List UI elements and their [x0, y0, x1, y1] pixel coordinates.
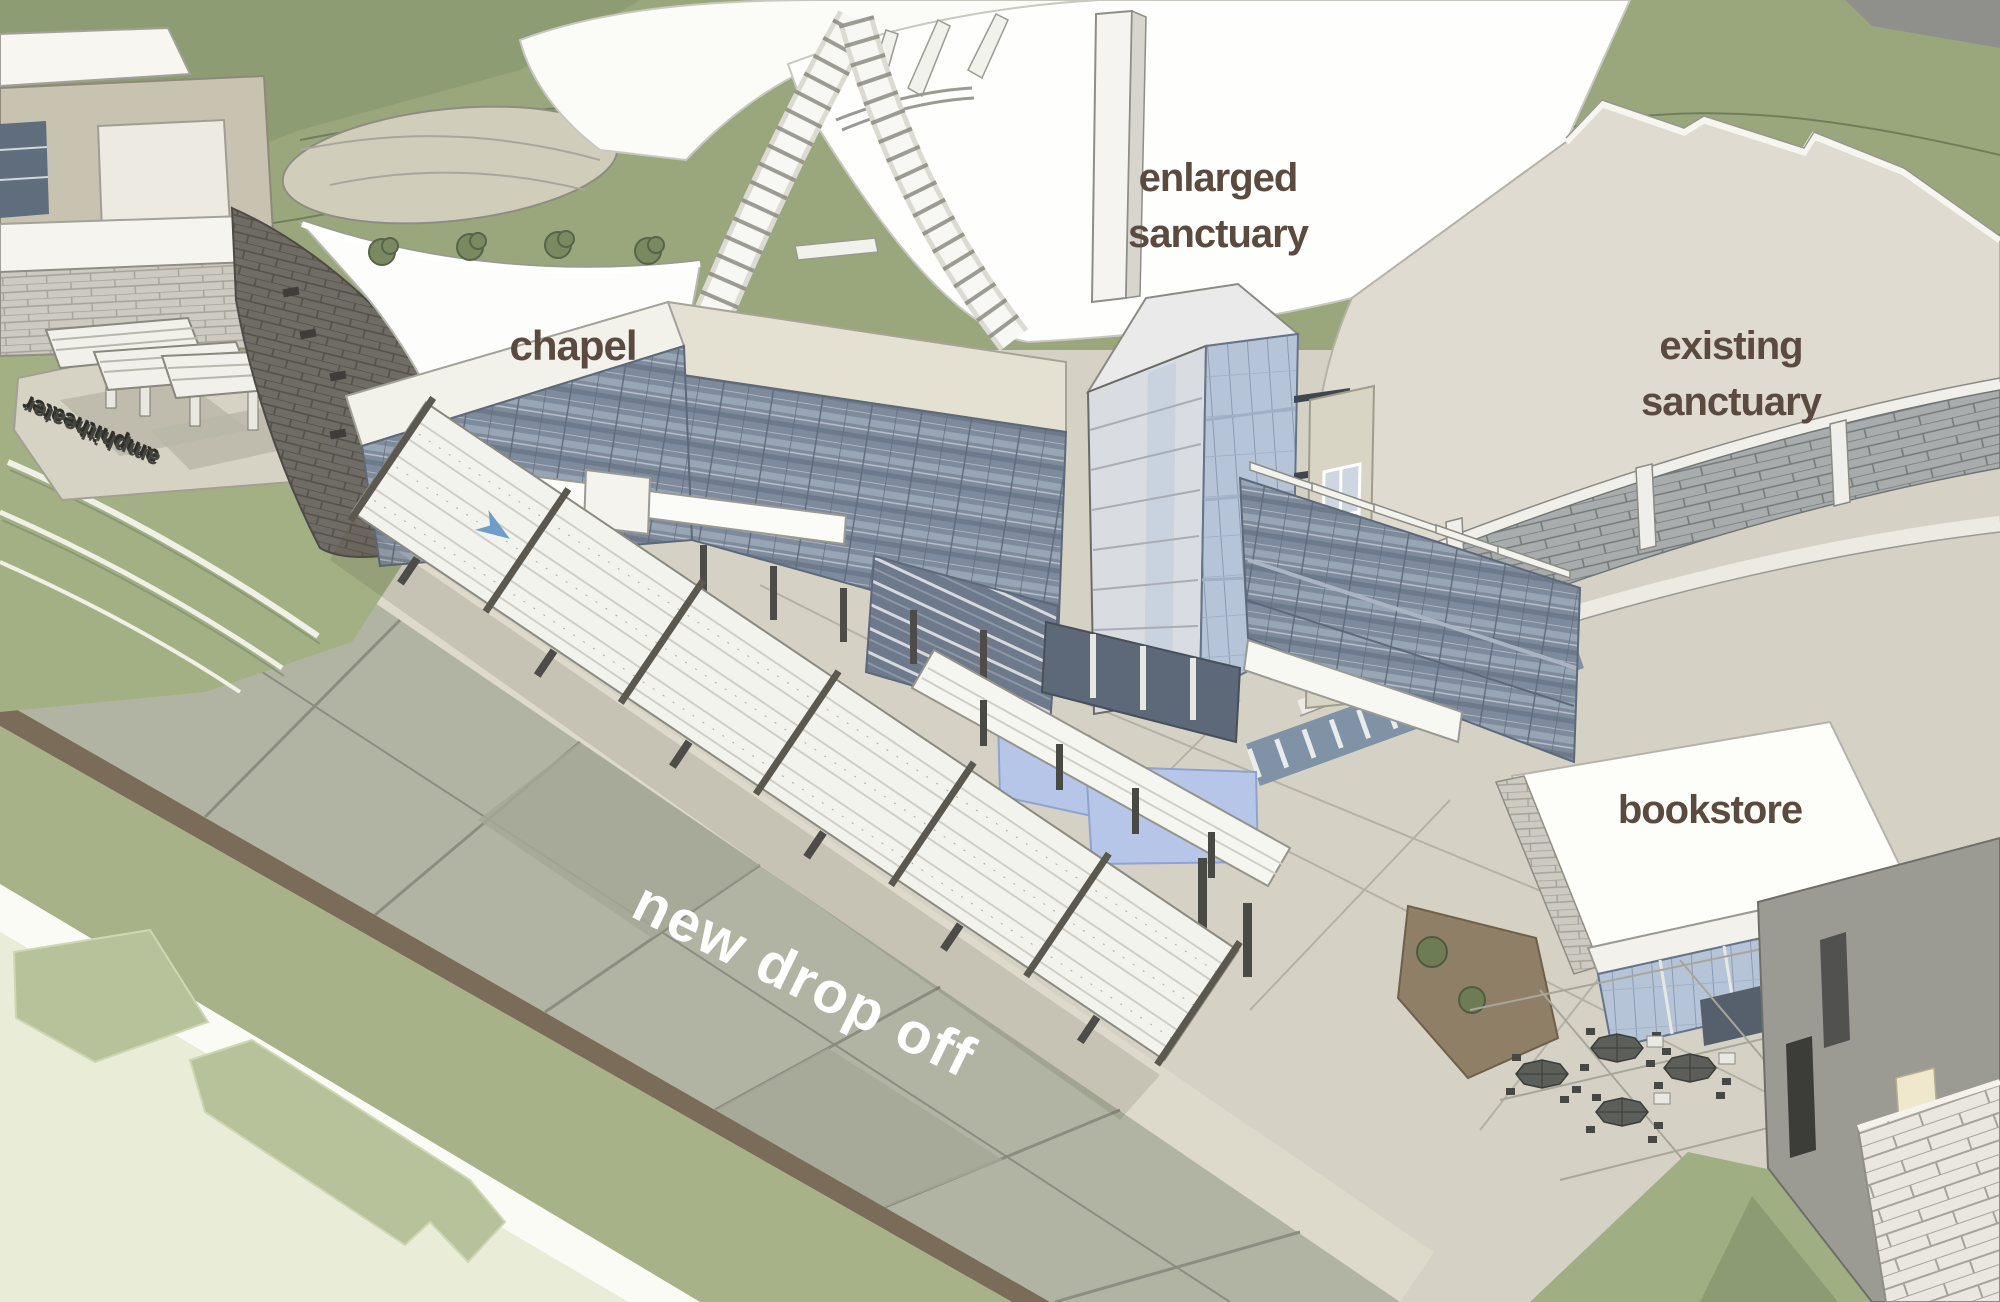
label-line: existing	[1531, 318, 1931, 374]
rendering-scene: enlarged sanctuary chapel existing sanct…	[0, 0, 2000, 1302]
label-line: bookstore	[1618, 788, 1802, 832]
label-chapel: chapel	[423, 322, 723, 370]
label-line: sanctuary	[1018, 206, 1418, 262]
label-line: enlarged	[1018, 150, 1418, 206]
existing-building-northwest	[0, 28, 276, 356]
label-enlarged-sanctuary: enlarged sanctuary	[1018, 150, 1418, 262]
tree	[1417, 937, 1447, 967]
label-line: sanctuary	[1531, 374, 1931, 430]
rendering-canvas	[0, 0, 2000, 1302]
label-bookstore: bookstore	[1540, 788, 1880, 833]
label-line: chapel	[509, 322, 636, 369]
window-band	[0, 121, 49, 218]
label-existing-sanctuary: existing sanctuary	[1531, 318, 1931, 430]
